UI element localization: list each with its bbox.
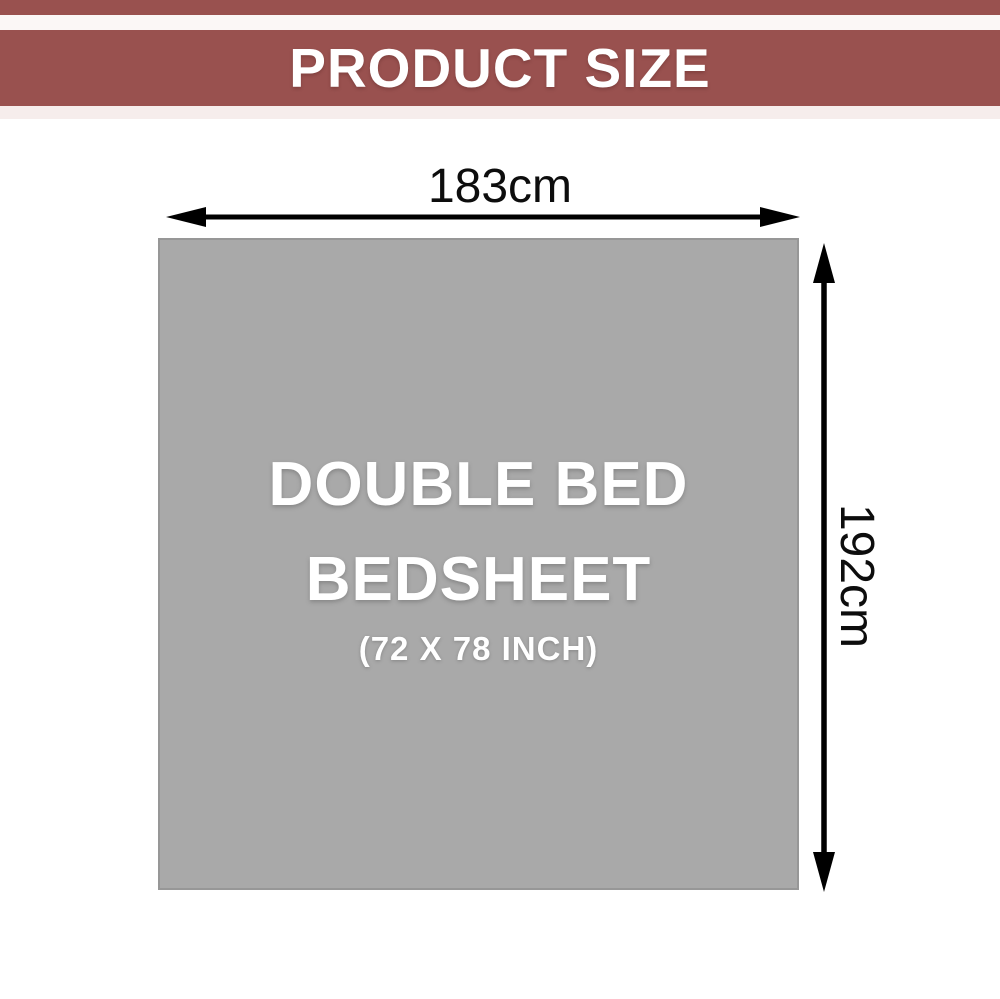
height-arrow-top-head: [813, 243, 835, 283]
header-top-stripe: [0, 0, 1000, 15]
header-bottom-stripe: [0, 106, 1000, 119]
bedsheet-rectangle: DOUBLE BED BEDSHEET (72 X 78 INCH): [158, 238, 799, 890]
product-title-line-1: DOUBLE BED: [269, 437, 689, 532]
height-arrow-bottom-head: [813, 852, 835, 892]
header-gap-stripe: [0, 15, 1000, 30]
product-size-infographic: PRODUCT SIZE 183cm DOUBLE BED BEDSHEET (…: [0, 0, 1000, 999]
page-title: PRODUCT SIZE: [289, 36, 710, 100]
height-dimension-label: 192cm: [832, 476, 882, 676]
width-arrow-right-head: [760, 207, 800, 227]
product-title-line-2: BEDSHEET: [306, 532, 652, 627]
width-arrow-icon: [160, 200, 806, 234]
product-size-inches: (72 X 78 INCH): [359, 627, 599, 671]
width-arrow-left-head: [166, 207, 206, 227]
header-band: PRODUCT SIZE: [0, 30, 1000, 106]
